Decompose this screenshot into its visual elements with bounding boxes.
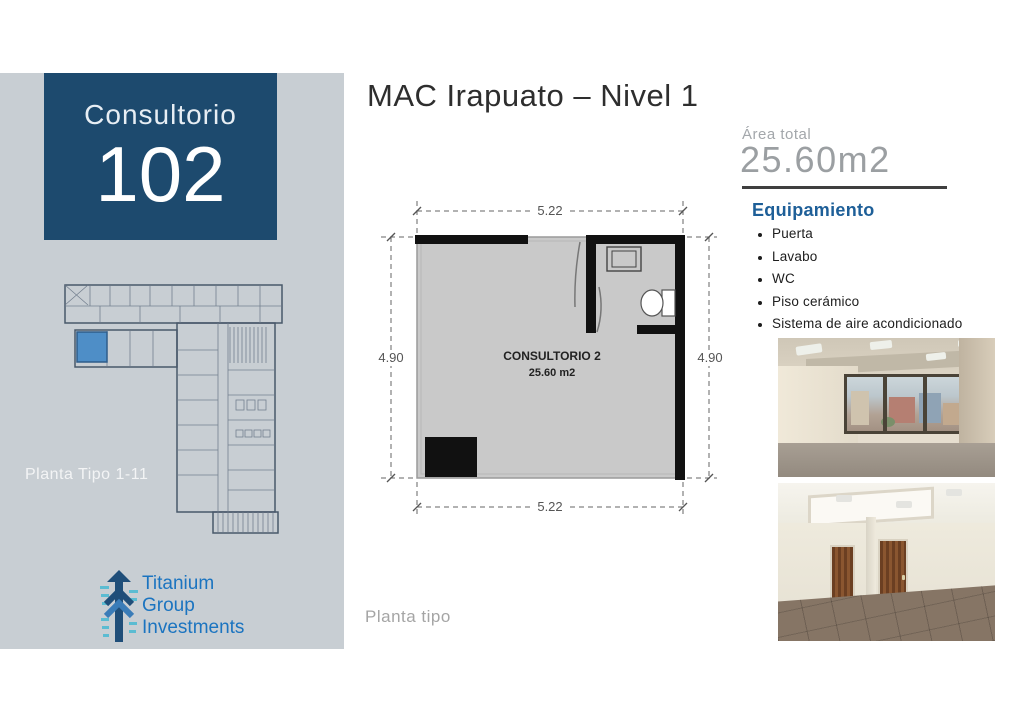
interior-photo-window-view bbox=[778, 338, 995, 477]
unit-floorplan-svg: 5.22 5.22 4.90 4.90 CONSULTORIO 2 25.60 … bbox=[375, 195, 725, 525]
equipment-item: Piso cerámico bbox=[772, 294, 962, 309]
building-key-plan-svg bbox=[50, 275, 300, 545]
area-total-value: 25.60m2 bbox=[740, 139, 891, 181]
window bbox=[844, 374, 962, 434]
interior-photo-doors bbox=[778, 483, 995, 641]
room-area-label: 25.60 m2 bbox=[529, 367, 575, 379]
room-label: CONSULTORIO 2 bbox=[503, 349, 601, 363]
equipment-item: WC bbox=[772, 271, 962, 286]
highlighted-unit-marker bbox=[77, 332, 107, 362]
equipment-list: Puerta Lavabo WC Piso cerámico Sistema d… bbox=[758, 226, 962, 339]
door-handle bbox=[902, 575, 905, 580]
company-logo-text: Titanium Group Investments bbox=[142, 573, 244, 639]
unit-box-number: 102 bbox=[95, 135, 225, 213]
equipment-item: Sistema de aire acondicionado bbox=[772, 316, 962, 331]
unit-number-box: Consultorio 102 bbox=[44, 73, 277, 240]
shaft-block bbox=[425, 437, 477, 477]
toilet-icon bbox=[641, 290, 675, 316]
titanium-building-arrow-icon bbox=[98, 568, 140, 644]
unit-box-label: Consultorio bbox=[84, 101, 237, 129]
page-title: MAC Irapuato – Nivel 1 bbox=[367, 78, 698, 114]
dim-right-label: 4.90 bbox=[697, 350, 722, 365]
sidebar: Consultorio 102 bbox=[0, 73, 344, 649]
logo-line-3: Investments bbox=[142, 617, 244, 639]
section-divider bbox=[742, 186, 947, 189]
dim-left-label: 4.90 bbox=[378, 350, 403, 365]
building-key-plan bbox=[50, 275, 300, 550]
logo-line-1: Titanium bbox=[142, 573, 244, 595]
dim-bottom-label: 5.22 bbox=[537, 499, 562, 514]
equipment-item: Lavabo bbox=[772, 249, 962, 264]
building-plan-caption: Planta Tipo 1-11 bbox=[25, 466, 148, 484]
equipment-item: Puerta bbox=[772, 226, 962, 241]
floorplan-caption: Planta tipo bbox=[365, 607, 451, 627]
company-logo: Titanium Group Investments bbox=[98, 568, 244, 644]
unit-floorplan: 5.22 5.22 4.90 4.90 CONSULTORIO 2 25.60 … bbox=[375, 195, 725, 530]
equipment-title: Equipamiento bbox=[752, 200, 875, 221]
dim-top-label: 5.22 bbox=[537, 203, 562, 218]
brochure-page: Consultorio 102 bbox=[0, 0, 1024, 724]
logo-line-2: Group bbox=[142, 595, 244, 617]
sink-icon bbox=[607, 247, 641, 271]
